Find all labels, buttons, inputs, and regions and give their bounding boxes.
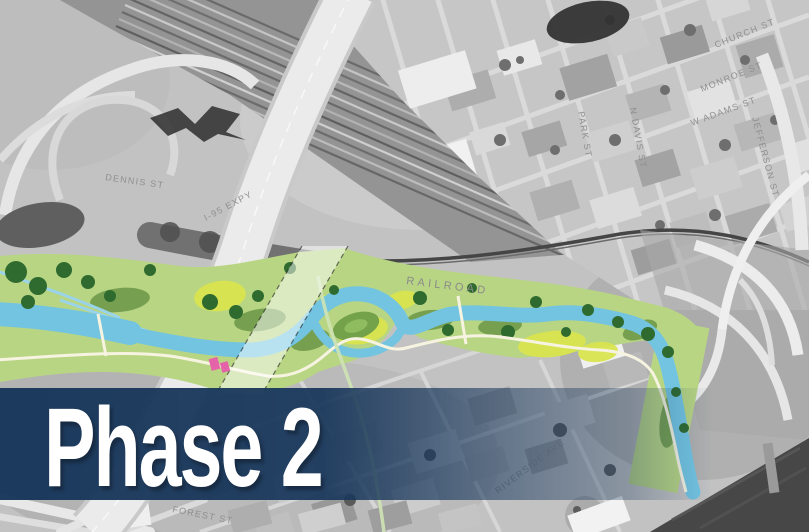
phase-title: Phase 2: [44, 392, 322, 504]
phase2-plan-image: DENNIS ST I-95 EXPY RAILROAD PARK ST N D…: [0, 0, 809, 532]
